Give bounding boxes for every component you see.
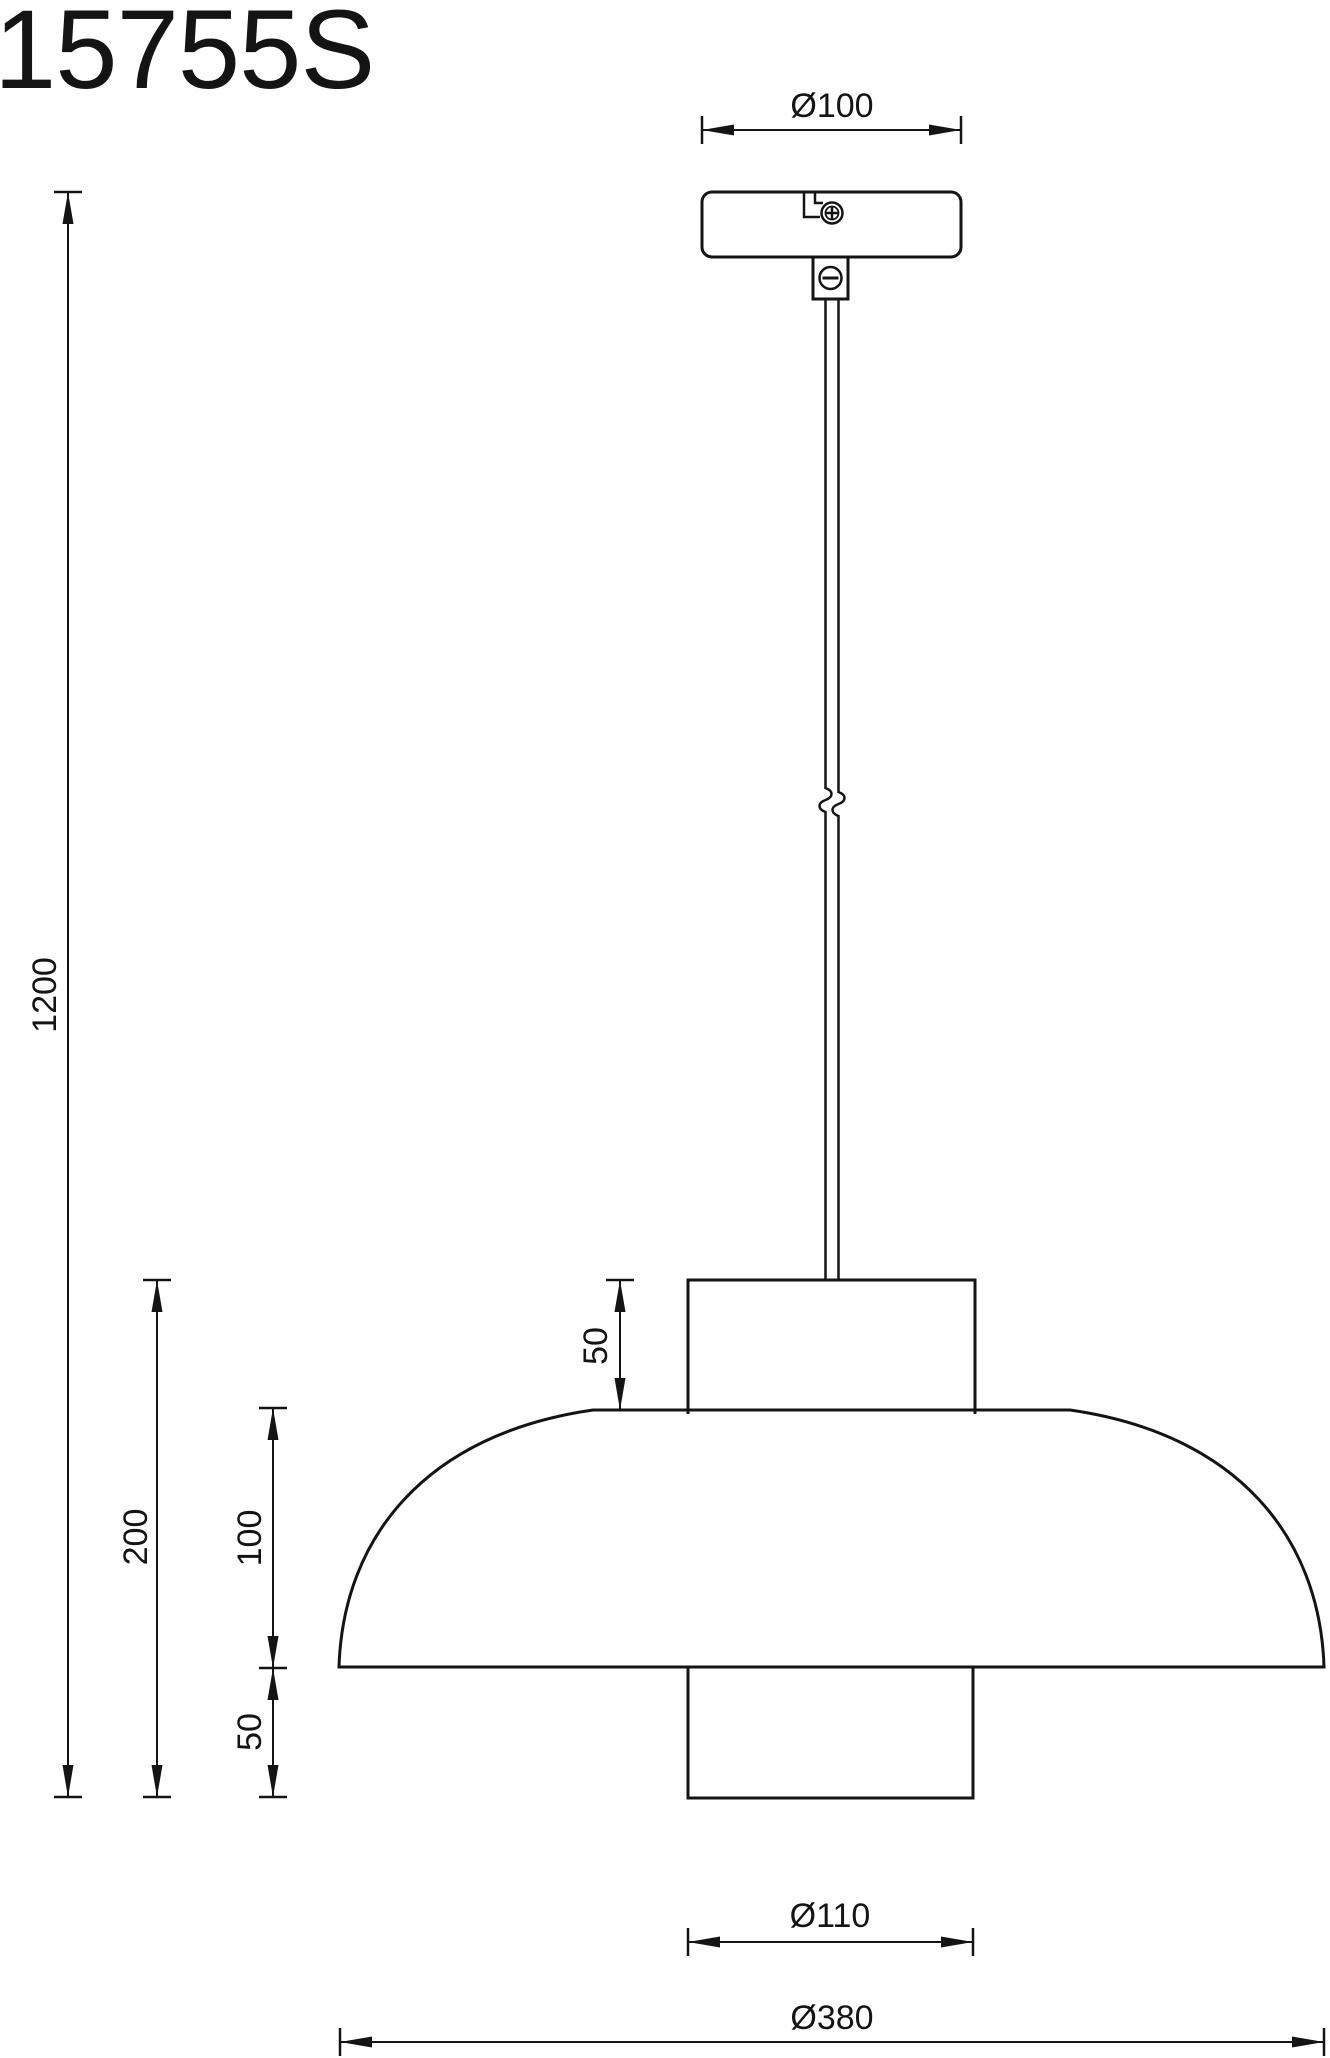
grip-slotted-screw-icon [820,267,842,289]
cable-grip [813,257,848,299]
technical-drawing-page: 15755S Ø100 1200 200 100 50 50 Ø110 Ø380 [0,0,1330,2058]
canopy-diameter-label: Ø100 [790,89,873,123]
drawing-svg [0,0,1330,2058]
bottom-cylinder-height-label: 50 [233,1713,267,1751]
top-neck-height-label: 50 [579,1327,613,1365]
ceiling-canopy [702,192,961,257]
suspension-cable [820,299,845,1280]
shade-dome [339,1410,1324,1667]
shade-top-neck [688,1280,975,1414]
model-number: 15755S [0,0,374,115]
lamp-shade [339,1280,1324,1798]
fixture-total-height-label: 200 [119,1509,153,1566]
shade-bottom-cylinder [688,1667,973,1798]
bottom-cylinder-diameter-label: Ø110 [790,1899,871,1933]
shade-diameter-label: Ø380 [790,2001,873,2035]
canopy-phillips-screw-icon [822,203,843,224]
shade-dome-height-label: 100 [233,1510,267,1567]
suspension-length-label: 1200 [28,957,62,1033]
